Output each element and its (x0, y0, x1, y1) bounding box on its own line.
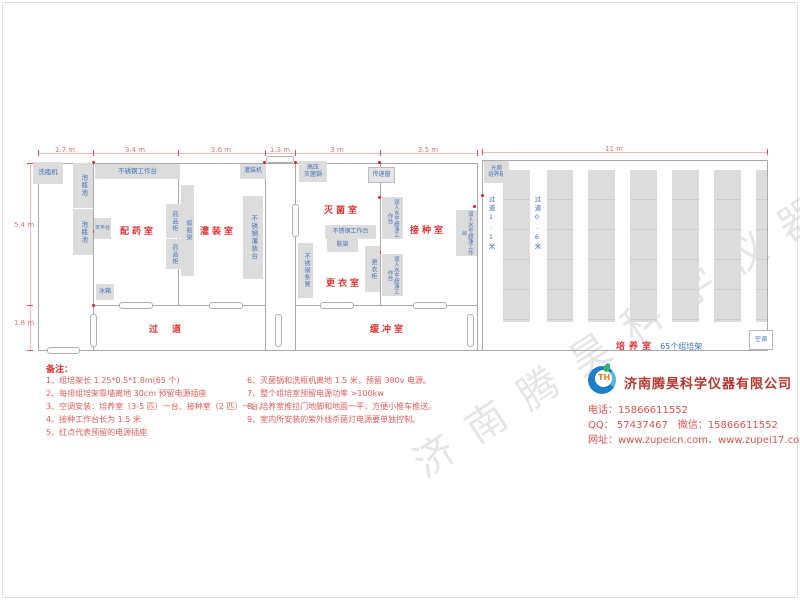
door-symbol (275, 314, 282, 347)
wall (482, 160, 768, 161)
power-outlet-dot (378, 161, 381, 164)
dim-tick (482, 149, 483, 155)
medicine-cabinet: 药品柜 (166, 239, 181, 269)
room-label-filling: 灌装室 (200, 224, 236, 237)
door-symbol (209, 302, 243, 309)
door-symbol (320, 302, 354, 309)
bottle-washer-label: 洗瓶机 (38, 169, 58, 176)
note-7: 7、整个组培室预留电源功率 >100kw (247, 388, 384, 399)
soaking-pool-label: 泡瓶池 (79, 174, 86, 197)
dim-3-6m: 3.6 m (211, 146, 231, 154)
sliding-door-symbol (266, 156, 294, 163)
pass-through-window-label: 传递窗 (372, 172, 390, 179)
door-symbol (292, 204, 299, 237)
wall (767, 160, 768, 351)
fridge: 冰箱 (96, 284, 114, 300)
wall (265, 163, 266, 350)
autoclave-label: 灭菌锅 (304, 172, 322, 179)
dim-tick (265, 150, 266, 156)
bottle-washer: 洗瓶机 (33, 162, 63, 184)
culture-rack (630, 170, 657, 322)
medicine-cabinet-label: 药品柜 (170, 244, 177, 265)
power-outlet-dot (481, 194, 484, 197)
soaking-pool: 泡瓶池 (73, 209, 93, 255)
company-phone: 电话：15866611552 (588, 401, 688, 416)
locker: 更衣柜 (365, 246, 380, 292)
balance-table: 天平台 (94, 218, 111, 239)
medicine-cabinet: 药品柜 (166, 204, 181, 238)
room-label-dispensing: 配药室 (120, 224, 156, 237)
stainless-workbench: 不锈钢工作台 (95, 164, 180, 179)
room-label-culture: 培养室 (616, 342, 655, 352)
pass-through-window: 传递窗 (368, 167, 395, 183)
aisle-width-label: 过道1.1米 (486, 196, 496, 252)
laminar-flow-bench: 双人水平超净工作台 (382, 197, 403, 239)
laminar-flow-bench-label: 双人水平超净工作台 (386, 254, 399, 296)
note-8: 8、培养室推拉门地脚和地面一平，方便小推车推送。 (247, 401, 436, 412)
wall (445, 305, 477, 306)
company-logo: TH (588, 366, 616, 394)
wall (152, 305, 209, 306)
culture-rack (503, 170, 530, 322)
filling-machine: 灌装机 (240, 164, 266, 179)
culture-rack (588, 170, 615, 322)
dim-1-3m: 1.3 m (270, 146, 290, 154)
laminar-flow-bench-label: 双人水平超净工作台 (386, 197, 399, 239)
note-5: 5、红点代表预留的电源插座 (46, 427, 147, 438)
company-website: 网址：www.zupeicn.com、www.zupei17.com (588, 431, 800, 446)
room-label-buffer: 缓冲室 (370, 322, 406, 335)
dim-tick (93, 150, 94, 156)
filling-machine-label: 灌装机 (244, 168, 262, 175)
shoe-rack-label: 鞋架 (336, 242, 348, 249)
wall (38, 163, 39, 351)
wall (352, 305, 413, 306)
stainless-bench-label: 不锈钢条凳 (302, 253, 309, 288)
power-outlet-dot (473, 205, 476, 208)
power-outlet-dot (92, 304, 95, 307)
air-conditioner-label: 空调 (755, 337, 767, 344)
bottle-drying-rack: 晾瓶架 (181, 185, 194, 276)
bottle-drying-rack-label: 晾瓶架 (184, 220, 191, 241)
door-symbol (90, 314, 97, 347)
top-dimension-line-right (482, 152, 767, 153)
wall (242, 305, 265, 306)
note-9: 9、室内所安装的紫外线杀菌灯电源要单独控制。 (247, 414, 420, 425)
air-conditioner: 空调 (749, 330, 773, 350)
room-label-sterilizing: 灭菌室 (324, 203, 360, 216)
company-name: 济南腾昊科学仪器有限公司 (624, 373, 792, 392)
door-symbol (119, 302, 153, 309)
door-symbol (47, 347, 80, 354)
dim-1-7m: 1.7 m (55, 146, 75, 154)
stainless-workbench-label: 不锈钢工作台 (118, 168, 157, 175)
company-logo-monogram: TH (598, 373, 610, 382)
floor-plan-sheet: 济南腾昊科学仪器有限公司 1.7 m 3.4 m 3.6 m 1.3 m 3 m… (0, 0, 800, 600)
dim-tick (178, 150, 179, 156)
fridge-label: 冰箱 (99, 289, 111, 296)
note-3: 3、空调安装：培养室（3-5 匹）一台、接种室（2 匹）一台。 (46, 401, 266, 412)
dim-1-8m: 1.8 m (14, 319, 34, 327)
stainless-workbench-label: 不锈钢工作台 (332, 229, 368, 236)
aisle-width-label: 过道0.6米 (532, 196, 542, 252)
stainless-workbench: 不锈钢工作台 (325, 225, 376, 239)
dim-tick (477, 150, 478, 156)
note-1: 1、组培架长 1.25*0.5*1.8m(65 个) (46, 375, 180, 386)
wall (477, 163, 478, 350)
top-dimension-line (38, 153, 477, 154)
room-label-changing: 更衣室 (326, 276, 362, 289)
dim-tick (767, 149, 768, 155)
balance-table-label: 天平台 (95, 226, 110, 232)
wall (482, 160, 483, 350)
dim-tick (27, 305, 33, 306)
wall (295, 163, 296, 350)
dim-tick (380, 150, 381, 156)
power-outlet-dot (378, 196, 381, 199)
wall (295, 305, 320, 306)
dim-3-4m: 3.4 m (125, 146, 145, 154)
dim-11m: 11 m (605, 145, 623, 153)
laminar-flow-bench: 双人水平超净工作台 (456, 210, 477, 256)
door-symbol (413, 302, 447, 309)
stainless-filling-table-label: 不锈钢灌装台 (249, 215, 256, 260)
laminar-flow-bench: 双人水平超净工作台 (382, 254, 403, 296)
dim-3-5m: 3.5 m (418, 146, 438, 154)
culture-rack (547, 170, 573, 322)
room-label-corridor: 过道 (149, 322, 195, 335)
wall (380, 163, 381, 305)
dim-tick (27, 350, 33, 351)
soaking-pool-label: 泡瓶池 (79, 221, 86, 244)
wall (93, 305, 119, 306)
autoclave: 高压 灭菌锅 (299, 161, 327, 182)
door-symbol (467, 314, 474, 347)
culture-rack-count: 65个组培架 (660, 342, 702, 351)
laminar-flow-bench-label: 双人水平超净工作台 (460, 210, 473, 256)
soaking-pool: 泡瓶池 (73, 163, 93, 208)
stainless-bench: 不锈钢条凳 (298, 243, 313, 298)
dim-tick (38, 150, 39, 156)
company-qq-wechat: QQ： 57437467 微信：15866611552 (588, 416, 778, 431)
medicine-cabinet-label: 药品柜 (170, 211, 177, 232)
culture-rack (714, 170, 741, 322)
note-4: 4、接种工作台长为 1.5 米 (46, 414, 141, 425)
dim-5-4m: 5.4 m (14, 221, 34, 229)
notes-title: 备注： (46, 362, 73, 375)
stainless-filling-table: 不锈钢灌装台 (243, 196, 263, 279)
note-2: 2、每排组培架靠墙离地 30cm 预留电源插座 (46, 388, 207, 399)
culture-rack (672, 170, 699, 322)
power-outlet-dot (294, 161, 297, 164)
room-label-inoculation: 接种室 (410, 223, 446, 236)
locker-label: 更衣柜 (369, 259, 376, 280)
note-6: 6、灭菌锅和洗瓶机离地 1.5 米，预留 380v 电源。 (247, 375, 431, 386)
shoe-rack: 鞋架 (327, 239, 358, 252)
dim-tick (295, 150, 296, 156)
dim-3m: 3 m (330, 146, 344, 154)
room-label-culture-group: 培养室 65个组培架 (616, 334, 702, 353)
culture-rack (756, 170, 767, 322)
